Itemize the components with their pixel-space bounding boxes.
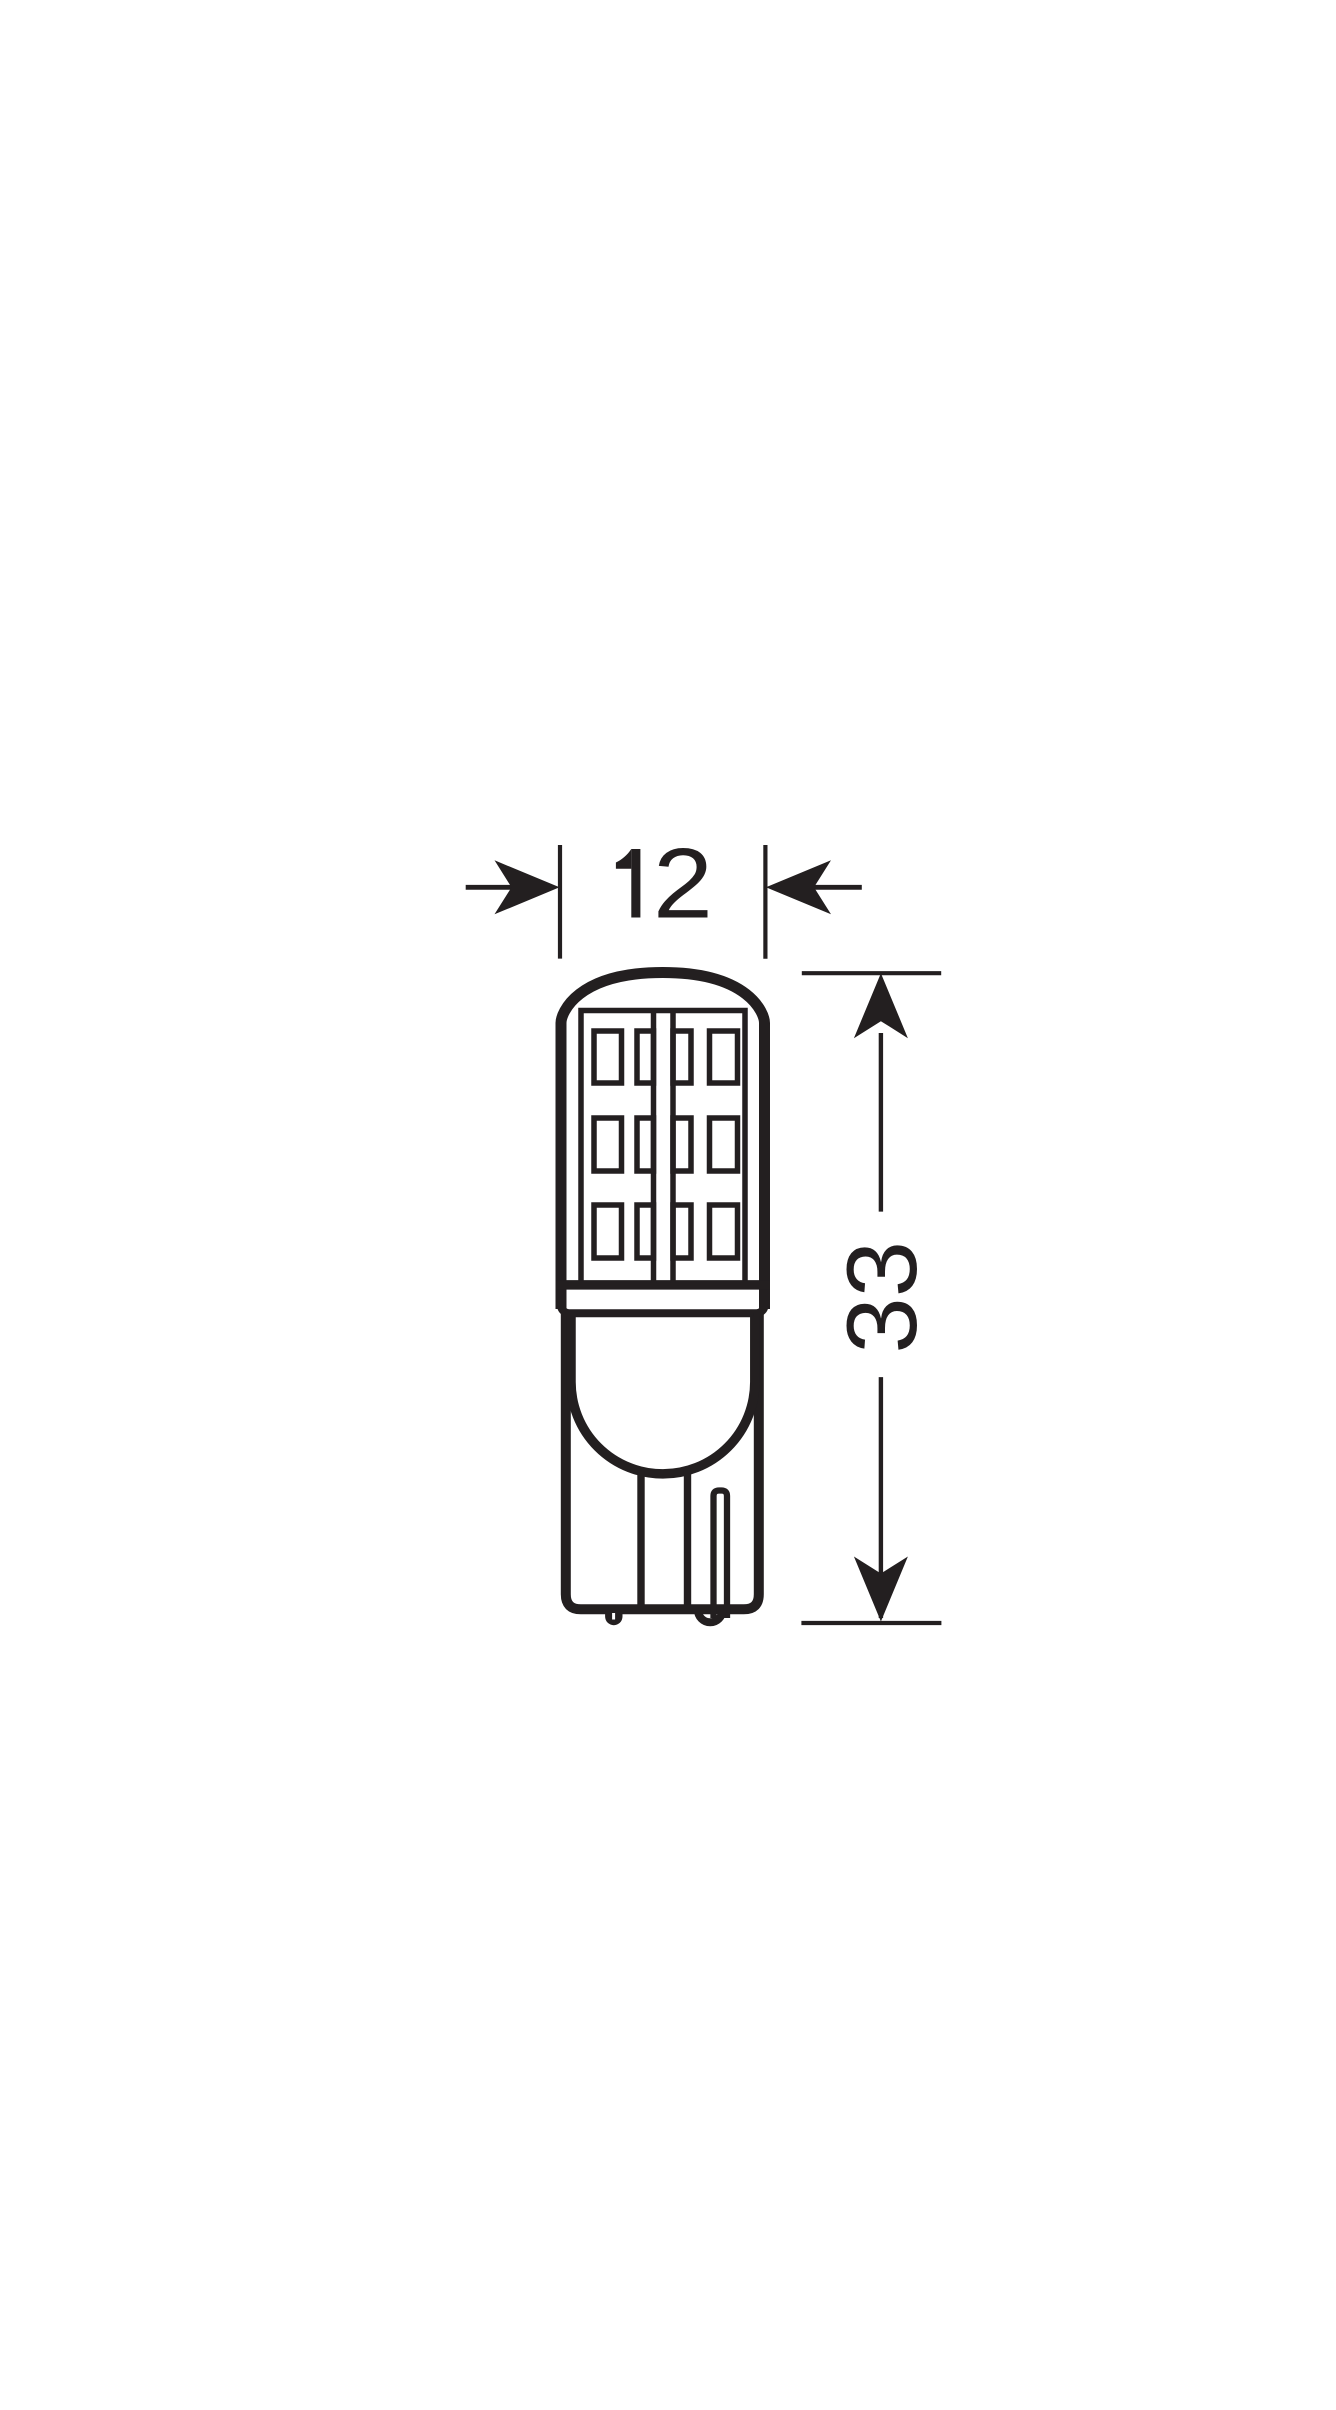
svg-text:33: 33 — [826, 1241, 937, 1354]
svg-text:2: 2 — [653, 828, 713, 939]
